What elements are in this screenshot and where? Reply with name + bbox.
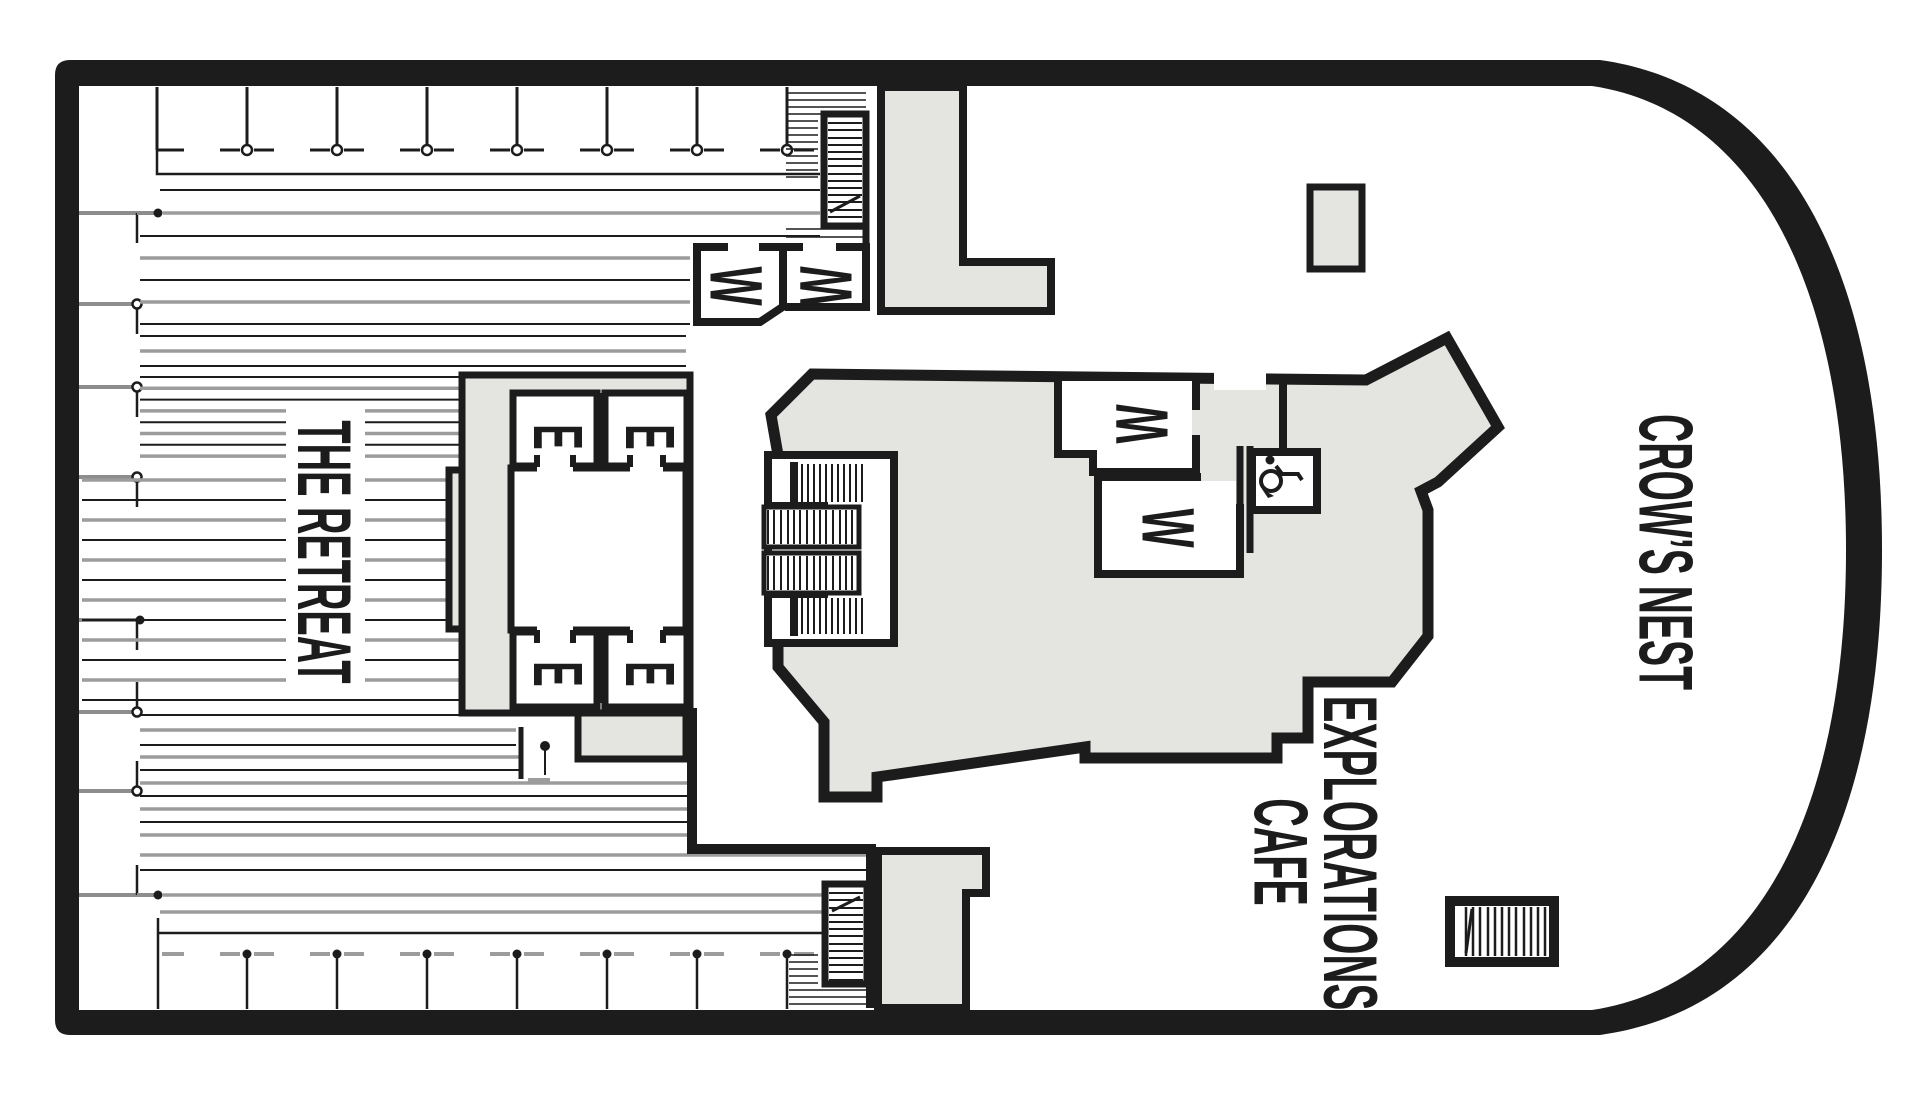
svg-text:E: E xyxy=(611,424,689,450)
svg-text:W: W xyxy=(785,266,868,305)
svg-text:CAFE: CAFE xyxy=(1238,798,1323,906)
svg-text:E: E xyxy=(611,661,689,687)
svg-text:E: E xyxy=(519,424,597,450)
svg-text:CROW’S NEST: CROW’S NEST xyxy=(1623,414,1708,690)
svg-text:W: W xyxy=(1127,508,1210,547)
svg-text:W: W xyxy=(1101,404,1184,443)
svg-text:W: W xyxy=(695,266,778,305)
svg-text:E: E xyxy=(519,661,597,687)
svg-text:THE RETREAT: THE RETREAT xyxy=(282,420,367,683)
